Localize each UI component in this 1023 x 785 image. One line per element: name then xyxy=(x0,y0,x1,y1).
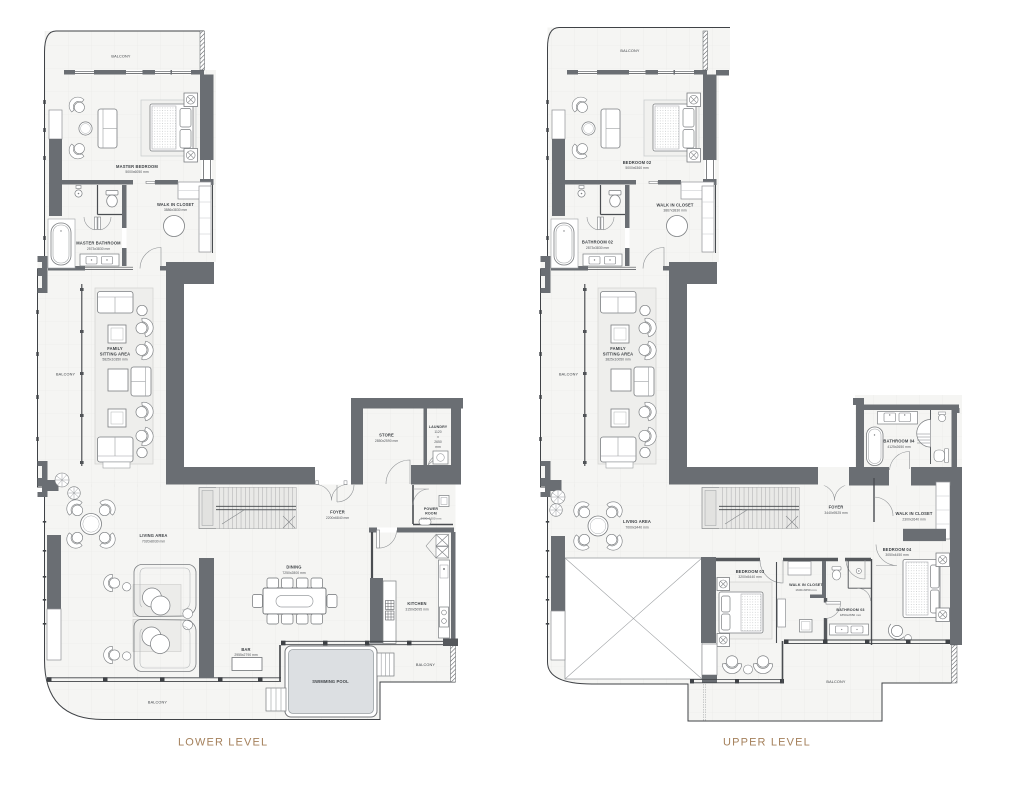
svg-text:3867x3830 mm: 3867x3830 mm xyxy=(663,209,687,213)
svg-text:FOYER: FOYER xyxy=(829,505,844,510)
svg-text:5825x10350 mm: 5825x10350 mm xyxy=(102,358,127,362)
svg-text:FOYER: FOYER xyxy=(330,510,345,515)
svg-text:1850x2650 mm: 1850x2650 mm xyxy=(840,613,862,617)
svg-text:SWIMMING POOL: SWIMMING POOL xyxy=(312,679,349,684)
svg-text:WALK IN CLOSET: WALK IN CLOSET xyxy=(895,511,932,516)
svg-text:MASTER BATHROOM: MASTER BATHROOM xyxy=(76,241,121,246)
svg-text:BEDROOM 02: BEDROOM 02 xyxy=(623,160,652,165)
svg-text:BATHROOM 04: BATHROOM 04 xyxy=(883,439,915,444)
svg-text:MASTER BEDROOM: MASTER BEDROOM xyxy=(116,164,158,169)
svg-text:1600x3650 mm: 1600x3650 mm xyxy=(795,588,817,592)
svg-text:DINING: DINING xyxy=(286,565,301,570)
svg-text:UPPER LEVEL: UPPER LEVEL xyxy=(723,737,811,749)
svg-text:WALK IN CLOSET: WALK IN CLOSET xyxy=(157,202,194,207)
svg-text:LIVING AREA: LIVING AREA xyxy=(623,519,651,524)
svg-text:LOWER LEVEL: LOWER LEVEL xyxy=(178,737,268,749)
svg-text:2955x2790 mm: 2955x2790 mm xyxy=(234,653,258,657)
svg-text:7250x2800 mm: 7250x2800 mm xyxy=(282,571,306,575)
svg-text:2200x6840 mm: 2200x6840 mm xyxy=(326,516,350,520)
svg-text:FAMILY: FAMILY xyxy=(107,346,123,351)
svg-text:KITCHEN: KITCHEN xyxy=(407,601,426,606)
svg-text:WALK IN CLOSET: WALK IN CLOSET xyxy=(656,203,693,208)
svg-text:3150x5095 mm: 3150x5095 mm xyxy=(405,607,429,611)
svg-text:BALCONY: BALCONY xyxy=(826,680,846,684)
svg-text:mm: mm xyxy=(435,445,441,449)
svg-text:2850x2590 mm: 2850x2590 mm xyxy=(375,439,399,443)
svg-text:POWER: POWER xyxy=(424,507,439,511)
svg-text:BALCONY: BALCONY xyxy=(111,55,131,59)
svg-text:4125x2650 mm: 4125x2650 mm xyxy=(887,445,911,449)
svg-text:2650: 2650 xyxy=(434,440,442,444)
svg-text:LAUNDRY: LAUNDRY xyxy=(429,425,448,429)
svg-text:3886x3830 mm: 3886x3830 mm xyxy=(164,208,188,212)
svg-text:x: x xyxy=(437,435,439,439)
svg-text:7000x3440 mm: 7000x3440 mm xyxy=(625,526,649,530)
svg-text:BATHROOM 03: BATHROOM 03 xyxy=(836,608,864,612)
svg-text:SITTING AREA: SITTING AREA xyxy=(603,351,634,356)
svg-text:3825x10050 mm: 3825x10050 mm xyxy=(605,358,630,362)
svg-text:1120: 1120 xyxy=(434,430,441,434)
svg-text:5000x6360 mm: 5000x6360 mm xyxy=(625,166,649,170)
svg-text:BALCONY: BALCONY xyxy=(56,373,76,377)
svg-text:BEDROOM 04: BEDROOM 04 xyxy=(883,547,912,552)
svg-text:BATHROOM 02: BATHROOM 02 xyxy=(582,240,614,245)
svg-text:BEDROOM 03: BEDROOM 03 xyxy=(736,569,765,574)
svg-text:1600x1600 mm: 1600x1600 mm xyxy=(421,516,442,520)
svg-text:5000x6050 mm: 5000x6050 mm xyxy=(125,170,149,174)
svg-text:3440x9525 mm: 3440x9525 mm xyxy=(824,511,848,515)
svg-text:BAR: BAR xyxy=(241,647,250,652)
svg-text:7020x8030 mm: 7020x8030 mm xyxy=(142,540,166,544)
svg-text:2300x2640 mm: 2300x2640 mm xyxy=(902,517,926,521)
svg-text:BALCONY: BALCONY xyxy=(416,663,436,667)
svg-text:LIVING AREA: LIVING AREA xyxy=(140,533,168,538)
svg-text:BALCONY: BALCONY xyxy=(148,701,168,705)
svg-text:3200x5440 mm: 3200x5440 mm xyxy=(738,575,762,579)
svg-text:2873x3830 mm: 2873x3830 mm xyxy=(586,246,610,250)
svg-text:BALCONY: BALCONY xyxy=(620,49,640,53)
svg-text:WALK IN CLOSET: WALK IN CLOSET xyxy=(789,583,823,587)
svg-text:BALCONY: BALCONY xyxy=(559,373,579,377)
svg-text:2573x3830 mm: 2573x3830 mm xyxy=(87,247,111,251)
svg-text:ROOM: ROOM xyxy=(425,512,437,516)
svg-text:STORE: STORE xyxy=(379,433,394,438)
svg-text:SITTING AREA: SITTING AREA xyxy=(100,351,131,356)
svg-text:FAMILY: FAMILY xyxy=(610,346,626,351)
svg-text:3050x4450 mm: 3050x4450 mm xyxy=(885,553,909,557)
